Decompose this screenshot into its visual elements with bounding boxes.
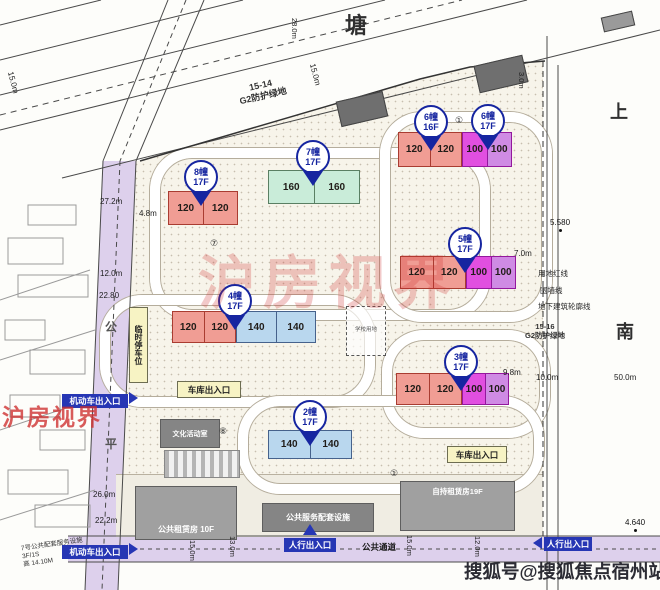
marker-circle: 6幢 17F xyxy=(471,104,505,138)
marker-circle: 8幢 17F xyxy=(184,160,218,194)
building-number: 8幢 xyxy=(186,167,216,177)
pedestrian-entrance-label: 人行出入口 xyxy=(289,539,332,551)
building-number: 2幢 xyxy=(295,407,325,417)
marker-tail-icon xyxy=(303,171,323,186)
dimension-label: 15.0m xyxy=(188,540,197,561)
boundary-label-wall: 围墙线 xyxy=(540,285,563,296)
top-road-name: 塘 xyxy=(345,8,367,40)
existing-buildings-outlines xyxy=(0,205,95,527)
building-number: 7幢 xyxy=(298,147,328,157)
right-road-name-char: 南 xyxy=(616,318,634,344)
watermark-bottom: 搜狐号@搜狐焦点宿州站 xyxy=(464,558,660,584)
vehicle-entrance-box-south: 机动车出入口 xyxy=(62,545,128,559)
marker-tail-icon xyxy=(300,431,320,446)
dimension-label: 12.0m xyxy=(473,536,482,557)
dimension-label: 27.2m xyxy=(100,197,122,206)
public-rental-building: 公共租赁房 10F xyxy=(135,486,237,540)
building-floors: 17F xyxy=(295,417,325,427)
facility-label: 公共服务配套设施 xyxy=(286,512,350,523)
vehicle-entrance-label: 机动车出入口 xyxy=(69,546,120,558)
building-marker-3: 3幢 17F xyxy=(444,345,478,391)
dimension-label: 50.0m xyxy=(614,373,636,382)
arrow-up-icon xyxy=(303,524,317,535)
pedestrian-entrance-box-east: 人行出入口 xyxy=(544,537,592,551)
garage-entrance-label: 车库出入口 xyxy=(456,449,499,461)
public-passage-label: 公共通道 xyxy=(362,541,396,553)
building-floors: 17F xyxy=(446,362,476,372)
marker-circle: 2幢 17F xyxy=(293,400,327,434)
dimension-label: 15.0m xyxy=(6,71,20,95)
building-marker-8: 8幢 17F xyxy=(184,160,218,206)
building-floors: 17F xyxy=(186,177,216,187)
hatched-area xyxy=(164,450,240,478)
building-marker-6-west: 6幢 16F xyxy=(414,105,448,151)
garage-entrance-box-east: 车库出入口 xyxy=(447,446,507,463)
dimension-label: 9.8m xyxy=(503,368,521,377)
public-service-building: 公共服务配套设施 xyxy=(262,503,374,532)
marker-tail-icon xyxy=(191,191,211,206)
elevation-point: 4.640 xyxy=(625,518,645,532)
dimension-label: 26.0m xyxy=(93,490,115,499)
dimension-label: 15.0m xyxy=(308,63,322,87)
parcel-code: 15-16 xyxy=(535,322,554,331)
building-floors: 17F xyxy=(298,157,328,167)
self-held-rental-building: 自持租赁房19F xyxy=(400,481,515,531)
marker-tail-icon xyxy=(478,135,498,150)
left-road-name-char: 公 xyxy=(105,318,117,335)
facility-label: 自持租赁房19F xyxy=(432,486,482,497)
pedestrian-entrance-label: 人行出入口 xyxy=(547,538,590,550)
building-outline xyxy=(601,11,636,33)
building-number: 6幢 xyxy=(473,111,503,121)
parcel-label-15-16: 15-16 G2防护绿地 xyxy=(525,322,565,341)
building-marker-2: 2幢 17F xyxy=(293,400,327,446)
dimension-label: 13.0m xyxy=(228,536,237,557)
watermark-center: 沪房视界 xyxy=(198,236,458,320)
circled-number: ① xyxy=(455,115,463,126)
unit-area-label: 100 xyxy=(491,257,516,288)
building-floors: 17F xyxy=(473,121,503,131)
building-marker-6-east: 6幢 17F xyxy=(471,104,505,150)
building-number: 6幢 xyxy=(416,112,446,122)
dimension-label: 28.0m xyxy=(290,18,299,39)
dimension-label: 22.80 xyxy=(99,291,119,300)
school-land-label: 学校用地 xyxy=(355,327,377,334)
parcel-name: G2防护绿地 xyxy=(525,331,565,340)
site-plan-canvas: 120 120 160 160 120 120 100 100 120 120 … xyxy=(0,0,660,590)
temporary-parking-box: 临时停车位 xyxy=(129,307,148,383)
arrow-right-icon xyxy=(129,543,138,555)
temporary-parking-label: 临时停车位 xyxy=(133,325,144,365)
building-marker-7: 7幢 17F xyxy=(296,140,330,186)
marker-tail-icon xyxy=(451,376,471,391)
dimension-label: 22.2m xyxy=(95,516,117,525)
dimension-label: 4.8m xyxy=(139,209,157,218)
garage-entrance-box-west: 车库出入口 xyxy=(177,381,241,398)
dimension-label: 7.0m xyxy=(514,249,532,258)
building-floors: 16F xyxy=(416,122,446,132)
arrow-right-icon xyxy=(129,392,138,404)
watermark-left: 沪房视界 xyxy=(2,398,102,432)
circled-number: ① xyxy=(390,468,398,479)
facility-label: 公共租赁房 10F xyxy=(158,524,214,535)
parcel-label-15-14: 15-14 G2防护绿地 xyxy=(236,75,288,108)
building-number: 3幢 xyxy=(446,352,476,362)
elevation-point: 5.580 xyxy=(550,218,570,232)
unit-area-label: 120 xyxy=(397,374,429,404)
marker-circle: 7幢 17F xyxy=(296,140,330,174)
boundary-label-underground: 地下建筑轮廓线 xyxy=(538,301,591,312)
culture-activity-building: 文化活动室 xyxy=(160,419,220,448)
left-road-name-char: 平 xyxy=(105,435,117,452)
pedestrian-entrance-box-center: 人行出入口 xyxy=(284,538,336,552)
circled-number: ⑧ xyxy=(219,426,227,437)
marker-circle: 3幢 17F xyxy=(444,345,478,379)
dimension-label: 10.0m xyxy=(536,373,558,382)
dimension-label: 12.0m xyxy=(100,269,122,278)
arrow-left-icon xyxy=(533,537,542,549)
marker-tail-icon xyxy=(421,136,441,151)
right-road-name-char: 上 xyxy=(610,98,628,124)
dimension-label: 3.0m xyxy=(517,72,526,89)
dimension-label: 15.0m xyxy=(405,535,414,556)
garage-entrance-label: 车库出入口 xyxy=(188,384,231,396)
marker-circle: 6幢 16F xyxy=(414,105,448,139)
boundary-label-redline: 用地红线 xyxy=(538,268,568,279)
unit-area-label: 100 xyxy=(485,374,508,404)
facility-label: 文化活动室 xyxy=(173,429,208,439)
